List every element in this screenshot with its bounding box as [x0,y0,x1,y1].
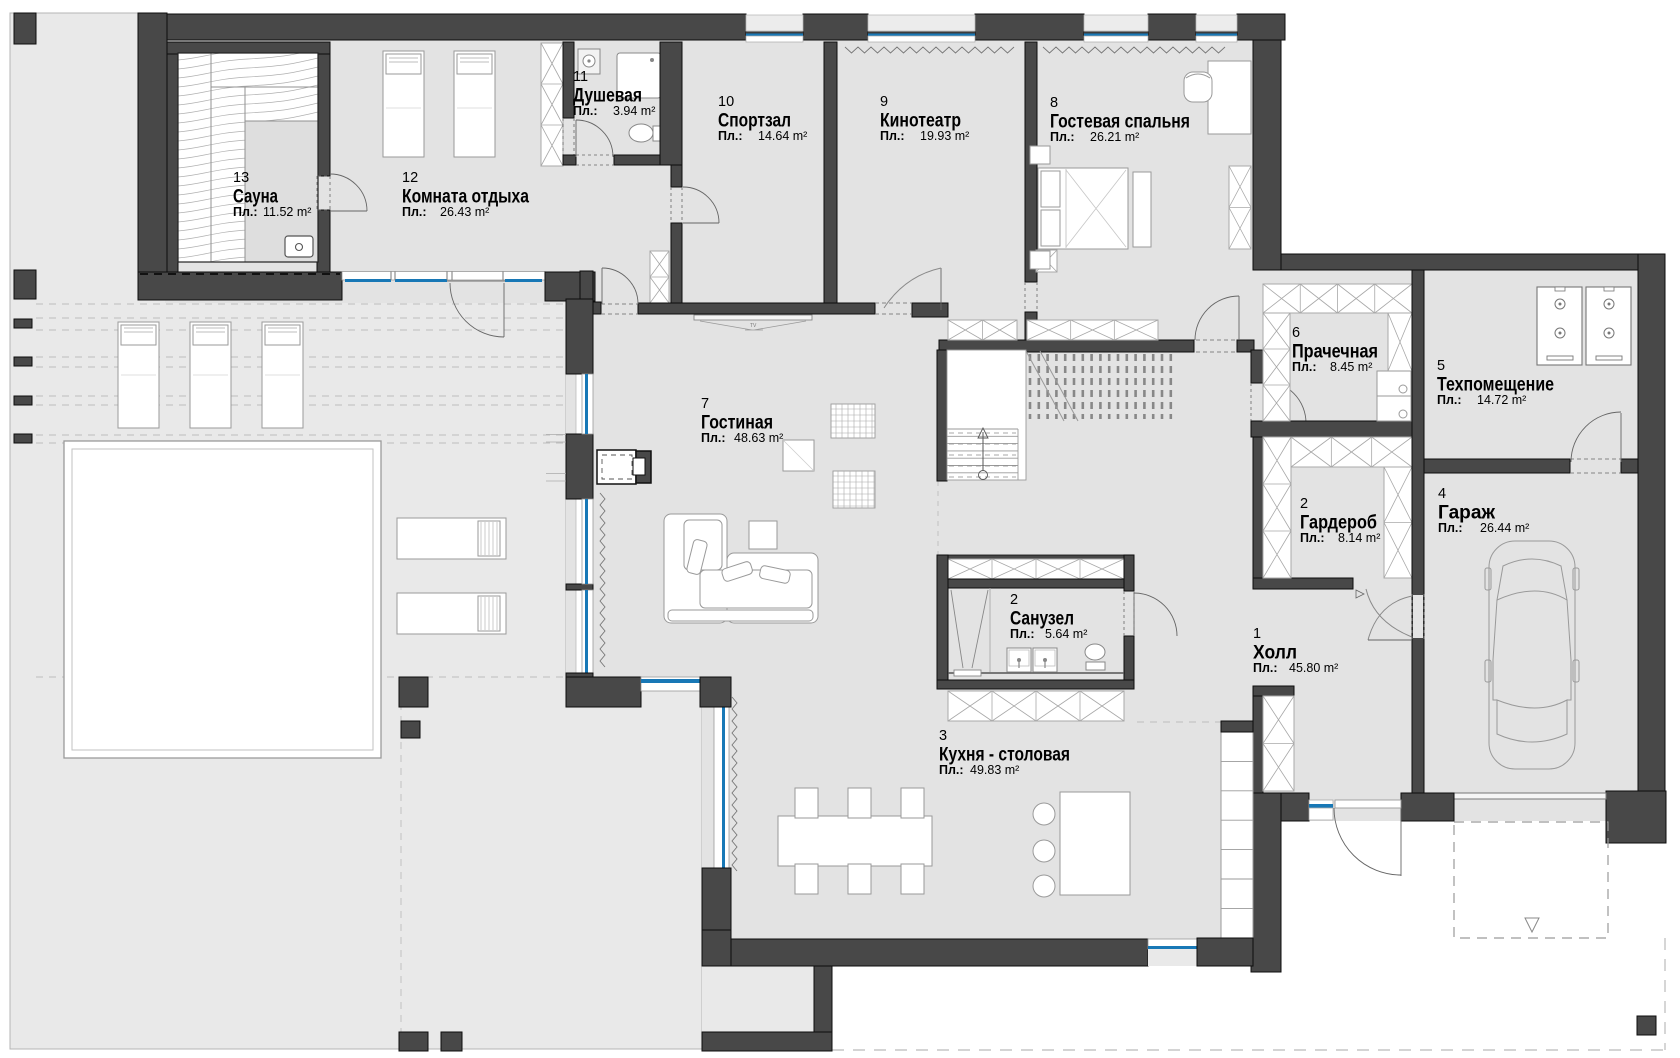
svg-text:9: 9 [880,94,888,110]
svg-text:2: 2 [1300,496,1308,512]
svg-text:26.43 m²: 26.43 m² [440,205,489,219]
svg-text:5: 5 [1437,358,1445,374]
svg-text:TV: TV [750,323,757,329]
svg-text:14.72 m²: 14.72 m² [1477,393,1526,407]
svg-text:Пл.:: Пл.: [1253,661,1278,675]
svg-text:48.63 m²: 48.63 m² [734,431,783,445]
svg-text:Пл.:: Пл.: [573,104,598,118]
svg-text:Пл.:: Пл.: [233,205,258,219]
svg-text:12: 12 [402,170,418,186]
svg-text:13: 13 [233,170,249,186]
svg-text:11.52 m²: 11.52 m² [263,205,311,219]
svg-text:49.83 m²: 49.83 m² [970,763,1019,777]
svg-text:7: 7 [701,396,709,412]
svg-text:3.94 m²: 3.94 m² [613,104,655,118]
svg-text:14.64 m²: 14.64 m² [758,129,807,143]
svg-text:Пл.:: Пл.: [718,129,743,143]
svg-text:6: 6 [1292,325,1300,341]
svg-text:Пл.:: Пл.: [1010,627,1035,641]
svg-text:8.14 m²: 8.14 m² [1338,531,1380,545]
svg-text:10: 10 [718,94,734,110]
svg-text:4: 4 [1438,486,1446,502]
svg-text:5.64 m²: 5.64 m² [1045,627,1087,641]
svg-text:Пл.:: Пл.: [939,763,964,777]
svg-text:8.45 m²: 8.45 m² [1330,360,1372,374]
svg-text:3: 3 [939,728,947,744]
svg-text:26.44 m²: 26.44 m² [1480,521,1529,535]
svg-text:45.80 m²: 45.80 m² [1289,661,1338,675]
svg-text:11: 11 [573,69,588,85]
svg-text:Пл.:: Пл.: [1438,521,1463,535]
svg-text:Пл.:: Пл.: [402,205,427,219]
svg-text:Пл.:: Пл.: [1292,360,1317,374]
svg-text:Пл.:: Пл.: [1437,393,1462,407]
svg-text:Пл.:: Пл.: [880,129,905,143]
svg-text:Пл.:: Пл.: [1300,531,1325,545]
svg-text:26.21 m²: 26.21 m² [1090,130,1139,144]
svg-text:Пл.:: Пл.: [1050,130,1075,144]
svg-text:19.93 m²: 19.93 m² [920,129,969,143]
svg-text:1: 1 [1253,626,1261,642]
svg-text:Пл.:: Пл.: [701,431,726,445]
svg-text:8: 8 [1050,95,1058,111]
svg-text:2: 2 [1010,592,1018,608]
